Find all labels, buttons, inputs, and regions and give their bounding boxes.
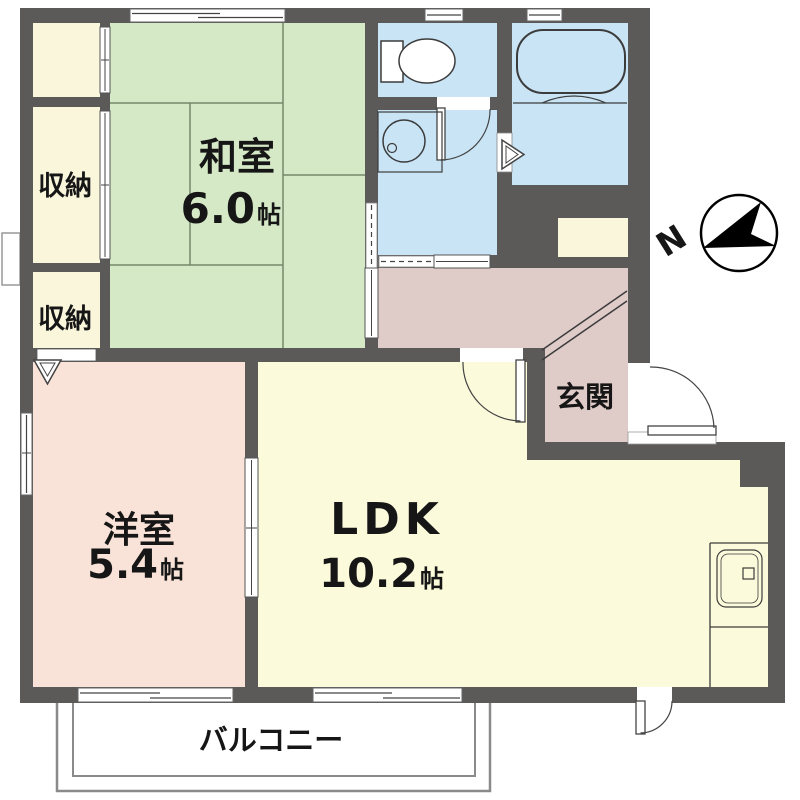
washitsu-size-value: 6.0	[181, 184, 255, 233]
ldk-label: LDK	[330, 494, 444, 545]
wall-closet-sep1	[33, 97, 100, 107]
wall-shoebox-top	[558, 213, 628, 218]
window-youshitsu-left	[21, 413, 32, 495]
wall-right-lower	[768, 460, 785, 703]
floorplan-svg: N 和室 6.0 帖 収納 収納 洋室 5.4 帖 LDK 10.2 帖 玄関 …	[0, 0, 800, 800]
shoe-cabinet-floor	[558, 218, 628, 257]
toilet-fixture-icon	[381, 39, 455, 83]
window-bath	[527, 9, 562, 21]
youshitsu-size-value: 5.4	[87, 542, 158, 588]
sliding-door-washroom-hall	[379, 255, 490, 268]
storage-low-label: 収納	[38, 303, 92, 335]
window-washitsu-top	[130, 9, 285, 22]
storage-top-floor	[33, 23, 100, 97]
washitsu-label: 和室	[199, 135, 275, 179]
exterior-pipe-space	[2, 233, 20, 285]
window-toilet	[425, 9, 463, 21]
wall-ldk-step	[740, 460, 768, 487]
sliding-door-youshitsu-ldk	[245, 458, 258, 597]
youshitsu-size-unit: 帖	[160, 556, 184, 584]
ldk-size-value: 10.2	[319, 551, 418, 597]
sliding-door-washitsu-hall	[365, 203, 378, 338]
floorplan-canvas: N 和室 6.0 帖 収納 収納 洋室 5.4 帖 LDK 10.2 帖 玄関 …	[0, 0, 800, 800]
wall-entry-bottom	[545, 442, 785, 460]
bathroom-floor	[512, 23, 628, 185]
wall-bath-bottom	[497, 185, 650, 213]
balcony-label: バルコニー	[199, 723, 343, 757]
window-ldk-balcony	[313, 688, 462, 702]
washitsu-size-unit: 帖	[257, 201, 281, 229]
window-youshitsu-balcony	[78, 688, 233, 702]
closet-mid-door	[100, 111, 110, 259]
ldk-size-unit: 帖	[420, 565, 444, 593]
closet-top-door	[100, 27, 110, 93]
wall-closet-sep2	[33, 263, 100, 272]
storage-mid-label: 収納	[38, 170, 92, 202]
wall-toilet-bath	[497, 8, 512, 110]
wall-genkan-left	[527, 348, 545, 460]
wall-shoebox-bottom	[545, 257, 628, 268]
genkan-label: 玄関	[556, 380, 614, 414]
